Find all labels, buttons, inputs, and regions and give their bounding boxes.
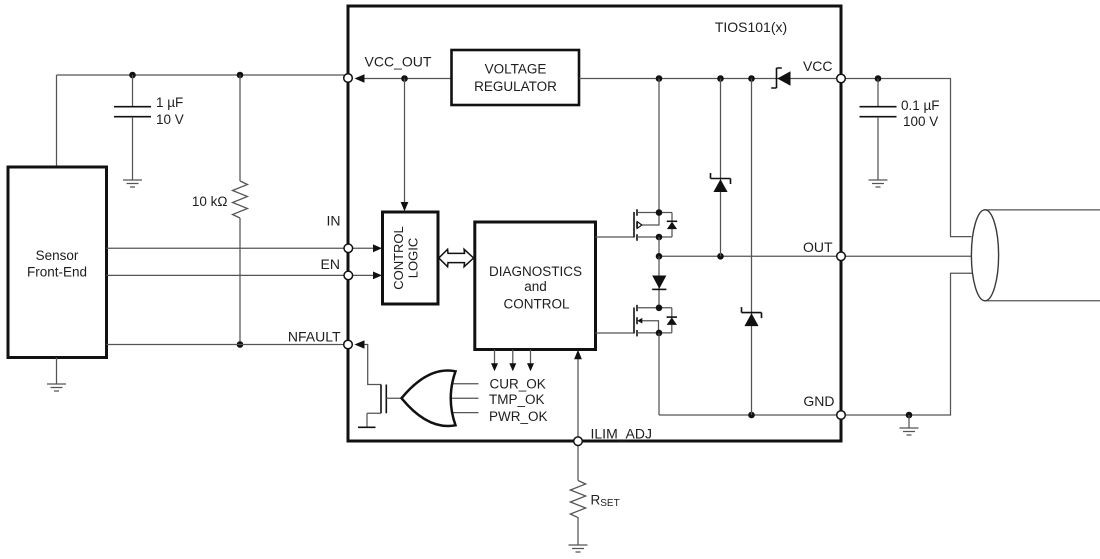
svg-text:TMP_OK: TMP_OK (489, 392, 545, 407)
svg-text:OUT: OUT (803, 239, 833, 255)
svg-text:GND: GND (803, 393, 834, 409)
svg-text:Sensor: Sensor (36, 248, 79, 263)
svg-text:CONTROL: CONTROL (391, 226, 406, 290)
svg-text:CONTROL: CONTROL (503, 296, 569, 311)
svg-text:VCC: VCC (803, 58, 833, 74)
svg-text:VOLTAGE: VOLTAGE (485, 62, 547, 77)
svg-text:NFAULT: NFAULT (288, 329, 341, 345)
svg-text:100 V: 100 V (903, 114, 938, 129)
svg-text:LOGIC: LOGIC (406, 238, 421, 278)
svg-text:ILIM_ADJ: ILIM_ADJ (591, 426, 652, 442)
svg-text:10 kΩ: 10 kΩ (192, 194, 228, 209)
svg-text:CUR_OK: CUR_OK (490, 376, 546, 391)
svg-text:VCC_OUT: VCC_OUT (365, 54, 432, 70)
svg-text:PWR_OK: PWR_OK (489, 409, 548, 424)
svg-text:TIOS101(x): TIOS101(x) (715, 19, 787, 35)
svg-text:1 µF: 1 µF (156, 95, 183, 110)
svg-text:REGULATOR: REGULATOR (474, 79, 557, 94)
svg-text:10 V: 10 V (156, 112, 184, 127)
svg-text:0.1 µF: 0.1 µF (901, 98, 940, 113)
svg-text:IN: IN (327, 213, 341, 229)
svg-text:Front-End: Front-End (27, 265, 87, 280)
svg-text:DIAGNOSTICS: DIAGNOSTICS (489, 264, 582, 279)
svg-text:EN: EN (321, 256, 340, 272)
svg-text:and: and (524, 279, 547, 294)
